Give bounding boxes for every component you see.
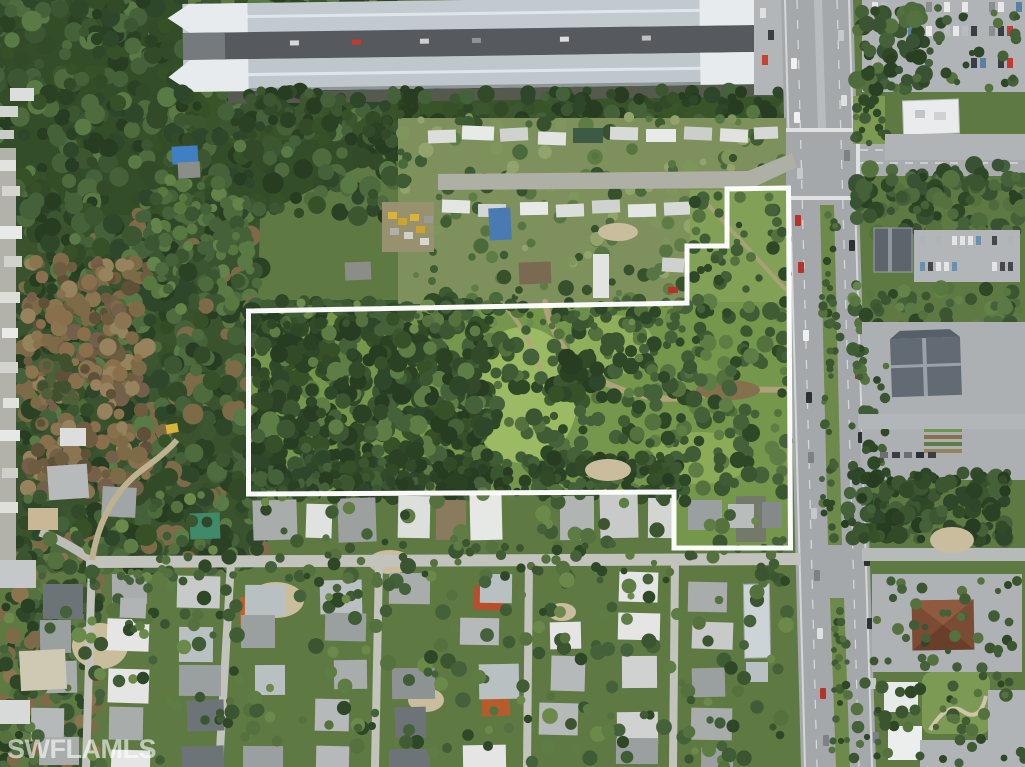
svg-text:SWFLAMLS: SWFLAMLS — [7, 734, 156, 764]
